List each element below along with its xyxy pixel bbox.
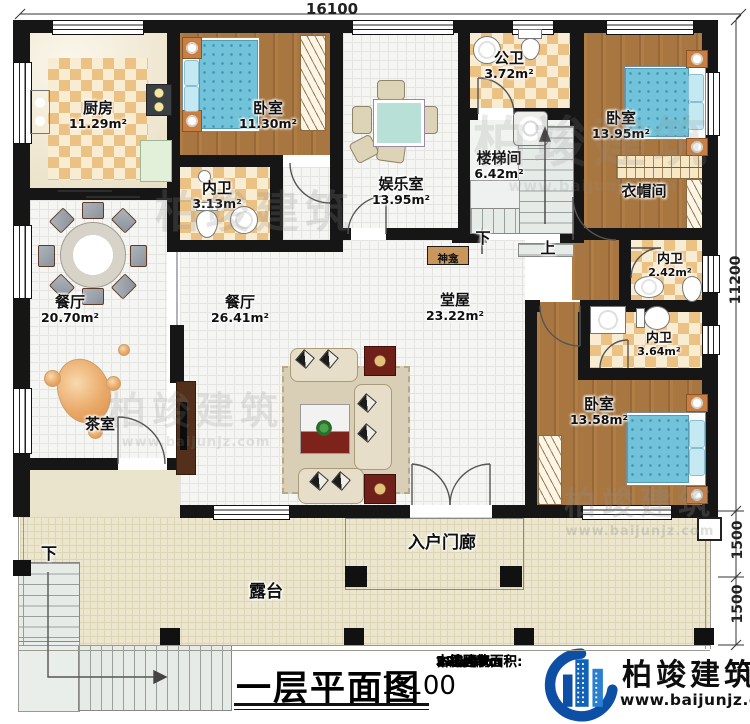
dimension-right: 11200 [728, 250, 744, 310]
room-label-bath3: 内卫3.64m² [628, 332, 690, 358]
room-label-bath1: 内卫3.13m² [177, 180, 257, 210]
dimension-top: 16100 [300, 0, 364, 18]
room-label-stairwell: 楼梯间6.42m² [460, 150, 538, 180]
room-label-cloakroom: 衣帽间 [608, 183, 680, 200]
room-label-bedroom3: 卧室13.58m² [562, 396, 636, 426]
dimension-right-lower: 1500 [730, 584, 746, 624]
room-label-bedroom2: 卧室13.95m² [585, 110, 657, 140]
room-label-public-bath: 公卫3.72m² [478, 50, 540, 80]
room-label-porch: 入户门廊 [392, 534, 492, 553]
shrine-box: 神龛 [427, 246, 469, 265]
room-label-bedroom1: 卧室11.30m² [228, 100, 308, 130]
stair-up-label: 上 [537, 240, 559, 257]
room-label-bath2: 内卫2.42m² [640, 253, 700, 279]
room-label-entertainment: 娱乐室13.95m² [365, 176, 437, 206]
floor-plan: 16100 11200 1500 1500 厨房11.29m² 卧室11.30m… [0, 0, 750, 724]
room-label-hall: 堂屋23.22m² [413, 292, 497, 322]
outdoor-stair-down-label: 下 [36, 545, 62, 563]
room-label-terrace: 露台 [234, 583, 298, 602]
room-label-kitchen: 厨房11.29m² [48, 100, 148, 130]
room-label-dining1: 餐厅20.70m² [28, 294, 112, 324]
room-label-shrine: 神龛 [438, 253, 459, 265]
stair-down-label: 下 [472, 230, 494, 247]
dimension-right-lower: 1500 [730, 520, 746, 560]
room-label-tearoom: 茶室 [68, 416, 132, 433]
room-label-dining2: 餐厅26.41m² [195, 294, 285, 324]
